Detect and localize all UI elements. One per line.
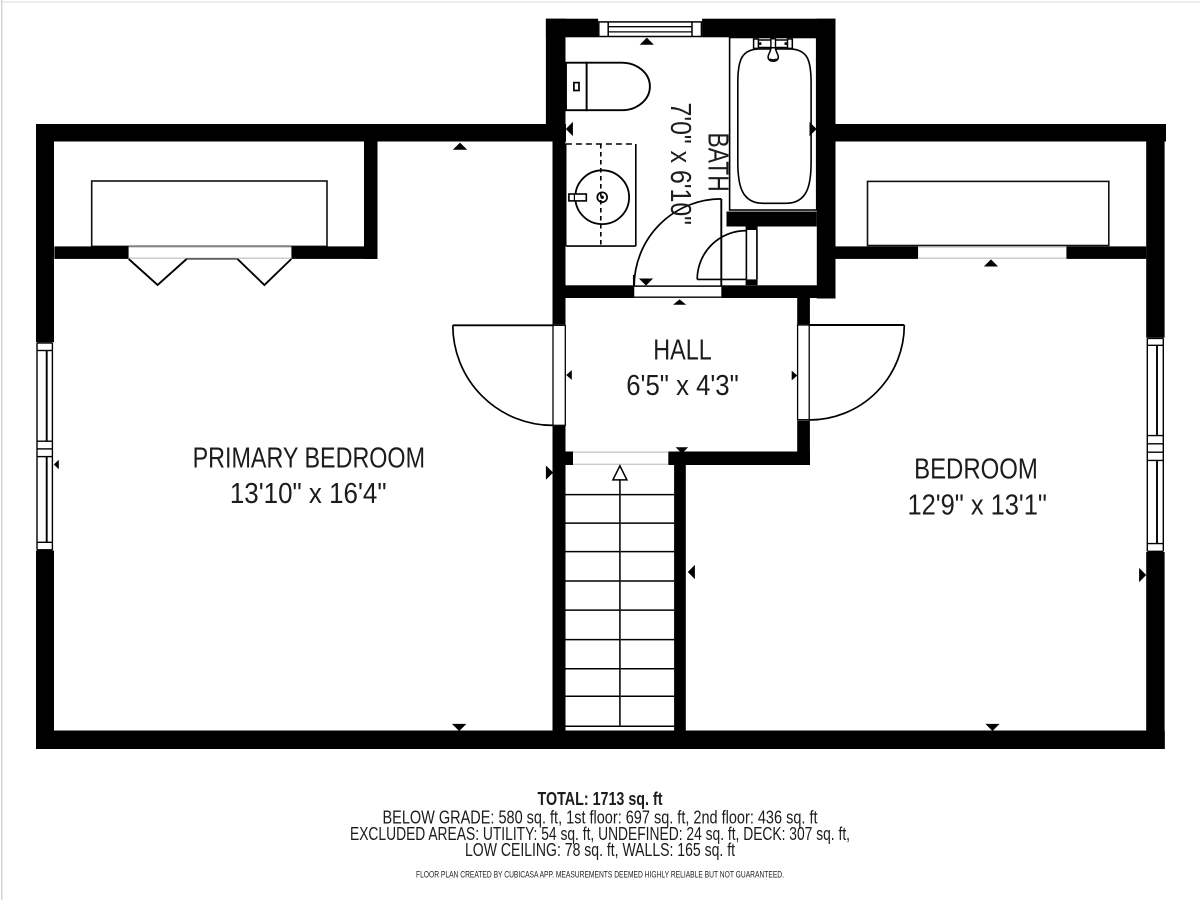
svg-text:LOW CEILING: 78 sq. ft, WALLS:: LOW CEILING: 78 sq. ft, WALLS: 165 sq. f… [465,840,735,860]
svg-text:HALL: HALL [653,335,711,367]
svg-text:BATH: BATH [701,133,733,192]
svg-text:7'0" x 6'10": 7'0" x 6'10" [664,103,696,226]
svg-text:13'10" x 16'4": 13'10" x 16'4" [230,478,387,510]
svg-text:BEDROOM: BEDROOM [914,453,1038,485]
svg-text:FLOOR PLAN CREATED BY CUBICASA: FLOOR PLAN CREATED BY CUBICASA APP. MEAS… [416,870,784,880]
svg-text:6'5" x 4'3": 6'5" x 4'3" [626,370,739,402]
svg-text:TOTAL: 1713 sq. ft: TOTAL: 1713 sq. ft [538,789,663,809]
svg-text:PRIMARY BEDROOM: PRIMARY BEDROOM [193,443,425,475]
svg-text:12'9" x 13'1": 12'9" x 13'1" [907,489,1047,521]
